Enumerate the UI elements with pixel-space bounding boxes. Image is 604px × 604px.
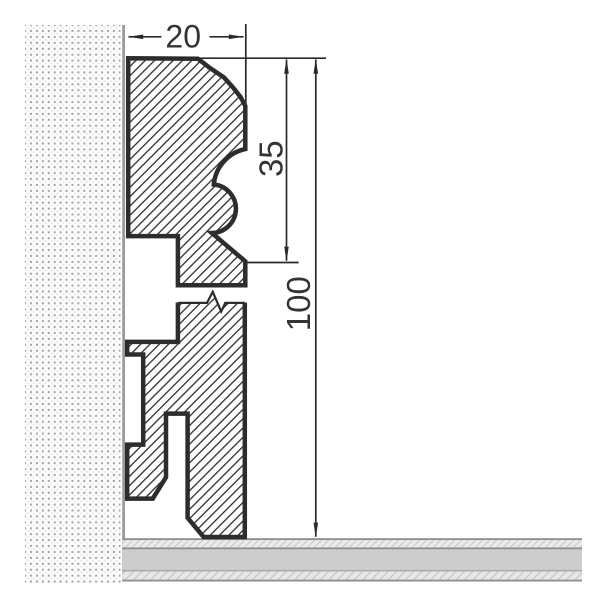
svg-text:20: 20 (165, 19, 201, 55)
svg-text:100: 100 (280, 276, 317, 331)
svg-text:35: 35 (252, 140, 289, 177)
